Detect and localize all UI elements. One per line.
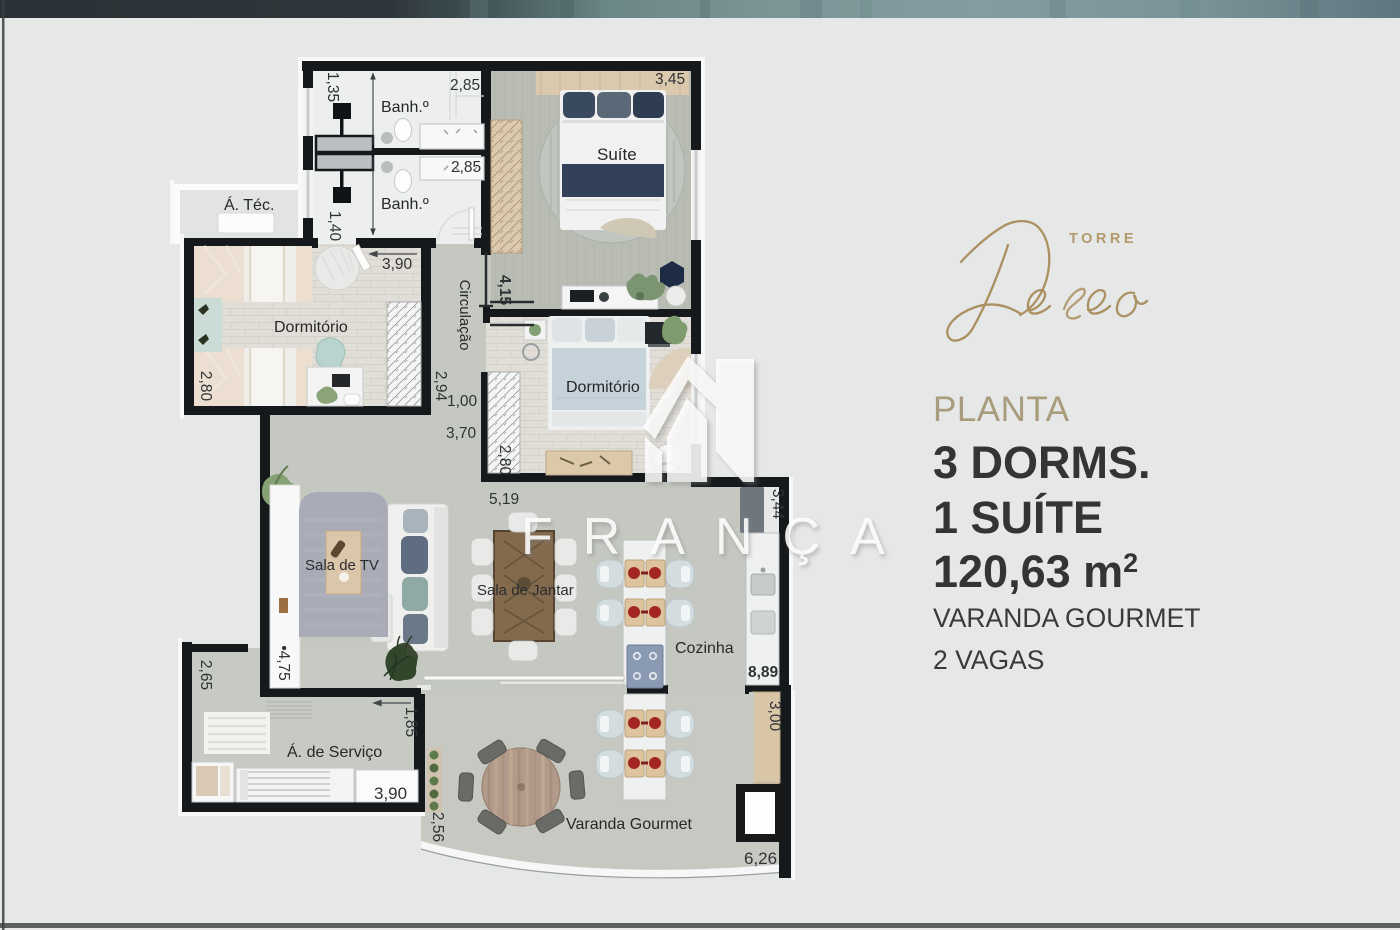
svg-text:2 VAGAS: 2 VAGAS (933, 645, 1044, 675)
svg-text:Banh.º: Banh.º (381, 99, 429, 116)
svg-text:1,00: 1,00 (447, 393, 478, 410)
svg-text:3 DORMS.: 3 DORMS. (933, 437, 1151, 488)
svg-text:VARANDA GOURMET: VARANDA GOURMET (933, 603, 1200, 633)
svg-text:1,40: 1,40 (326, 211, 343, 242)
svg-text:Dormitório: Dormitório (274, 319, 348, 336)
svg-text:3,70: 3,70 (446, 425, 477, 442)
svg-text:PLANTA: PLANTA (933, 390, 1070, 429)
svg-text:2,80: 2,80 (197, 371, 214, 402)
svg-text:TORRE: TORRE (1069, 231, 1137, 247)
svg-text:Suíte: Suíte (597, 145, 637, 164)
svg-text:FRANÇA: FRANÇA (521, 508, 915, 566)
svg-text:Varanda Gourmet: Varanda Gourmet (566, 816, 693, 833)
svg-text:Sala de Jantar: Sala de Jantar (477, 582, 574, 599)
svg-text:Á. Téc.: Á. Téc. (224, 195, 274, 214)
svg-text:Banh.º: Banh.º (381, 196, 429, 213)
svg-text:3,00: 3,00 (766, 701, 783, 732)
svg-text:1,85: 1,85 (402, 707, 419, 737)
svg-text:2,65: 2,65 (197, 660, 214, 690)
svg-text:2,80: 2,80 (496, 445, 513, 476)
svg-text:Cozinha: Cozinha (675, 640, 734, 657)
svg-text:2,85: 2,85 (450, 77, 480, 94)
svg-text:1 SUÍTE: 1 SUÍTE (933, 492, 1103, 543)
svg-text:2,56: 2,56 (429, 812, 446, 842)
svg-text:5,19: 5,19 (489, 491, 519, 508)
svg-text:3,90: 3,90 (382, 256, 413, 273)
svg-text:120,63 m2: 120,63 m2 (933, 546, 1138, 597)
svg-text:Circulação: Circulação (456, 280, 473, 351)
svg-text:•4,75: •4,75 (275, 645, 292, 681)
svg-text:Dormitório: Dormitório (566, 379, 640, 396)
svg-text:Sala de TV: Sala de TV (305, 557, 379, 574)
svg-text:2,85: 2,85 (451, 159, 481, 176)
svg-text:Á. de Serviço: Á. de Serviço (287, 742, 382, 761)
svg-text:3,90: 3,90 (374, 784, 407, 803)
svg-text:6,26: 6,26 (744, 849, 777, 868)
svg-text:1,35: 1,35 (324, 72, 341, 102)
svg-text:8,89: 8,89 (748, 664, 779, 681)
svg-text:3,45: 3,45 (655, 71, 685, 88)
